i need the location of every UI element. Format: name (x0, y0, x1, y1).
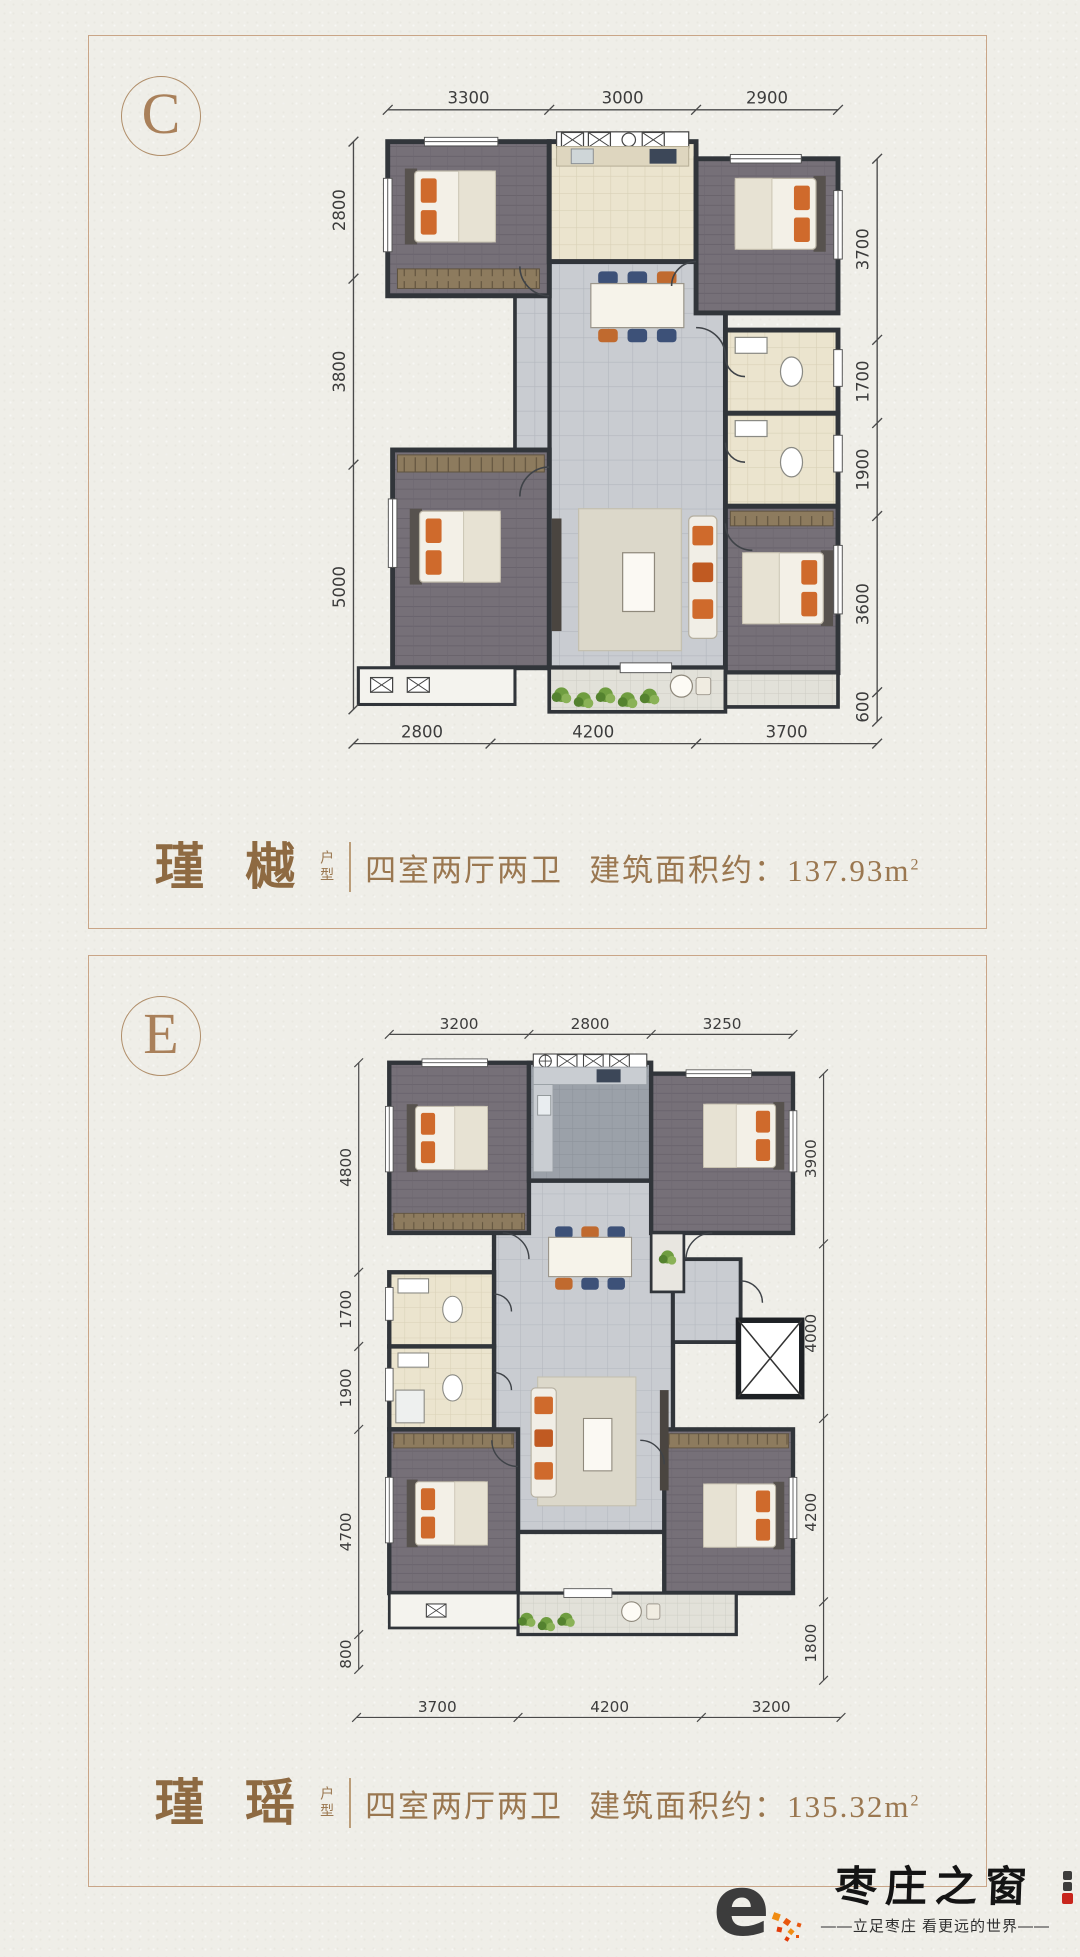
type-label: 户型 (315, 1786, 335, 1820)
logo-brand: 枣庄之窗 (835, 1865, 1037, 1911)
svg-text:4200: 4200 (801, 1493, 819, 1532)
patio-chair (696, 678, 711, 695)
ac-unit (426, 1604, 446, 1617)
sink (537, 1095, 550, 1115)
svg-text:3800: 3800 (329, 351, 348, 393)
plan-panel-c: C (88, 35, 987, 929)
svg-text:2800: 2800 (570, 1015, 609, 1033)
svg-text:4700: 4700 (337, 1513, 355, 1552)
patio-table (621, 1602, 641, 1622)
bed (703, 1482, 784, 1550)
svg-text:1700: 1700 (853, 360, 872, 402)
logo-e-glyph: e (713, 1865, 770, 1949)
svg-text:2800: 2800 (400, 723, 442, 742)
logo-dots (772, 1912, 802, 1942)
svg-text:3250: 3250 (702, 1015, 741, 1033)
ac-unit (370, 678, 392, 693)
kitchen-vent-strip (533, 1054, 646, 1068)
plan-badge-e: E (121, 996, 201, 1076)
svg-text:4200: 4200 (590, 1698, 629, 1716)
caption-c: 瑾 樾 户型 四室两厅两卫建筑面积约：137.93m2 (89, 842, 986, 892)
stove (649, 149, 676, 164)
plan-spec: 四室两厅两卫建筑面积约：135.32m2 (365, 1781, 920, 1826)
ac-unit (407, 678, 429, 693)
wardrobe (397, 269, 539, 289)
svg-text:800: 800 (337, 1640, 355, 1669)
svg-text:1800: 1800 (801, 1624, 819, 1663)
svg-text:1900: 1900 (337, 1368, 355, 1407)
svg-text:3000: 3000 (601, 89, 643, 108)
svg-text:4800: 4800 (337, 1148, 355, 1187)
wardrobe (393, 1213, 524, 1229)
round-vent (622, 133, 635, 146)
logo-e-icon: e (711, 1865, 811, 1949)
wardrobe (397, 455, 544, 472)
plan-spec: 四室两厅两卫建筑面积约：137.93m2 (365, 845, 920, 890)
bed (409, 509, 500, 585)
wardrobe (668, 1434, 788, 1448)
patio-table (670, 675, 692, 697)
logo-text: 枣庄之窗 ——立足枣庄 看更远的世界—— (821, 1865, 1050, 1936)
svg-text:3600: 3600 (853, 583, 872, 625)
caption-e: 瑾 瑶 户型 四室两厅两卫建筑面积约：135.32m2 (89, 1778, 986, 1828)
hallway (514, 296, 548, 450)
plan-letter-c: C (142, 85, 181, 143)
bed (735, 176, 826, 252)
svg-text:3900: 3900 (801, 1139, 819, 1178)
tv-cabinet (659, 1390, 668, 1490)
bed (406, 1480, 487, 1548)
caption-divider (349, 842, 351, 892)
svg-text:2900: 2900 (746, 89, 788, 108)
logo-seal (1060, 1871, 1074, 1917)
coffee-table (622, 553, 654, 612)
utility-strip (389, 1593, 518, 1628)
plan-name: 瑾 樾 (155, 842, 310, 892)
svg-text:2800: 2800 (329, 189, 348, 231)
svg-text:3700: 3700 (853, 228, 872, 270)
svg-text:3200: 3200 (439, 1015, 478, 1033)
floor-plan-e: 3200 2800 3250 4800 1700 1900 4700 800 3… (218, 1006, 898, 1748)
wardrobe (393, 1434, 513, 1448)
svg-text:3300: 3300 (447, 89, 489, 108)
bed (406, 1104, 487, 1172)
svg-text:3700: 3700 (417, 1698, 456, 1716)
plan-panel-e: E (88, 955, 987, 1887)
dining-set (590, 271, 683, 342)
bed (742, 550, 833, 626)
svg-text:4000: 4000 (801, 1314, 819, 1353)
caption-divider (349, 1778, 351, 1828)
svg-text:1900: 1900 (853, 449, 872, 491)
dining-table (548, 1237, 631, 1276)
type-label: 户型 (315, 850, 335, 884)
dining-set (548, 1226, 631, 1289)
tv-cabinet (551, 518, 561, 631)
elevator-shaft (738, 1320, 801, 1396)
dining-table (590, 284, 683, 328)
svg-text:600: 600 (853, 691, 872, 723)
bed (703, 1102, 784, 1170)
svg-text:3700: 3700 (765, 723, 807, 742)
svg-text:3200: 3200 (751, 1698, 790, 1716)
plan-badge-c: C (121, 76, 201, 156)
kitchen-vent-strip (556, 132, 688, 148)
floor-plan-c: 3300 3000 2900 2800 3800 5000 3700 1700 … (227, 78, 887, 773)
site-logo: e 枣庄之窗 ——立足枣庄 看更远的世界—— (711, 1865, 1074, 1949)
svg-text:4200: 4200 (572, 723, 614, 742)
plan-letter-e: E (143, 1005, 178, 1063)
bed (404, 169, 495, 245)
svg-text:5000: 5000 (329, 566, 348, 608)
plan-name: 瑾 瑶 (155, 1778, 310, 1828)
svg-text:1700: 1700 (337, 1290, 355, 1329)
sink (571, 149, 593, 164)
wardrobe (730, 511, 833, 526)
balcony-master (725, 673, 838, 707)
stove (596, 1069, 620, 1082)
logo-tagline: ——立足枣庄 看更远的世界—— (821, 1915, 1050, 1936)
coffee-table (583, 1418, 611, 1470)
kitchen-counter (556, 147, 688, 167)
patio-chair (646, 1604, 659, 1619)
